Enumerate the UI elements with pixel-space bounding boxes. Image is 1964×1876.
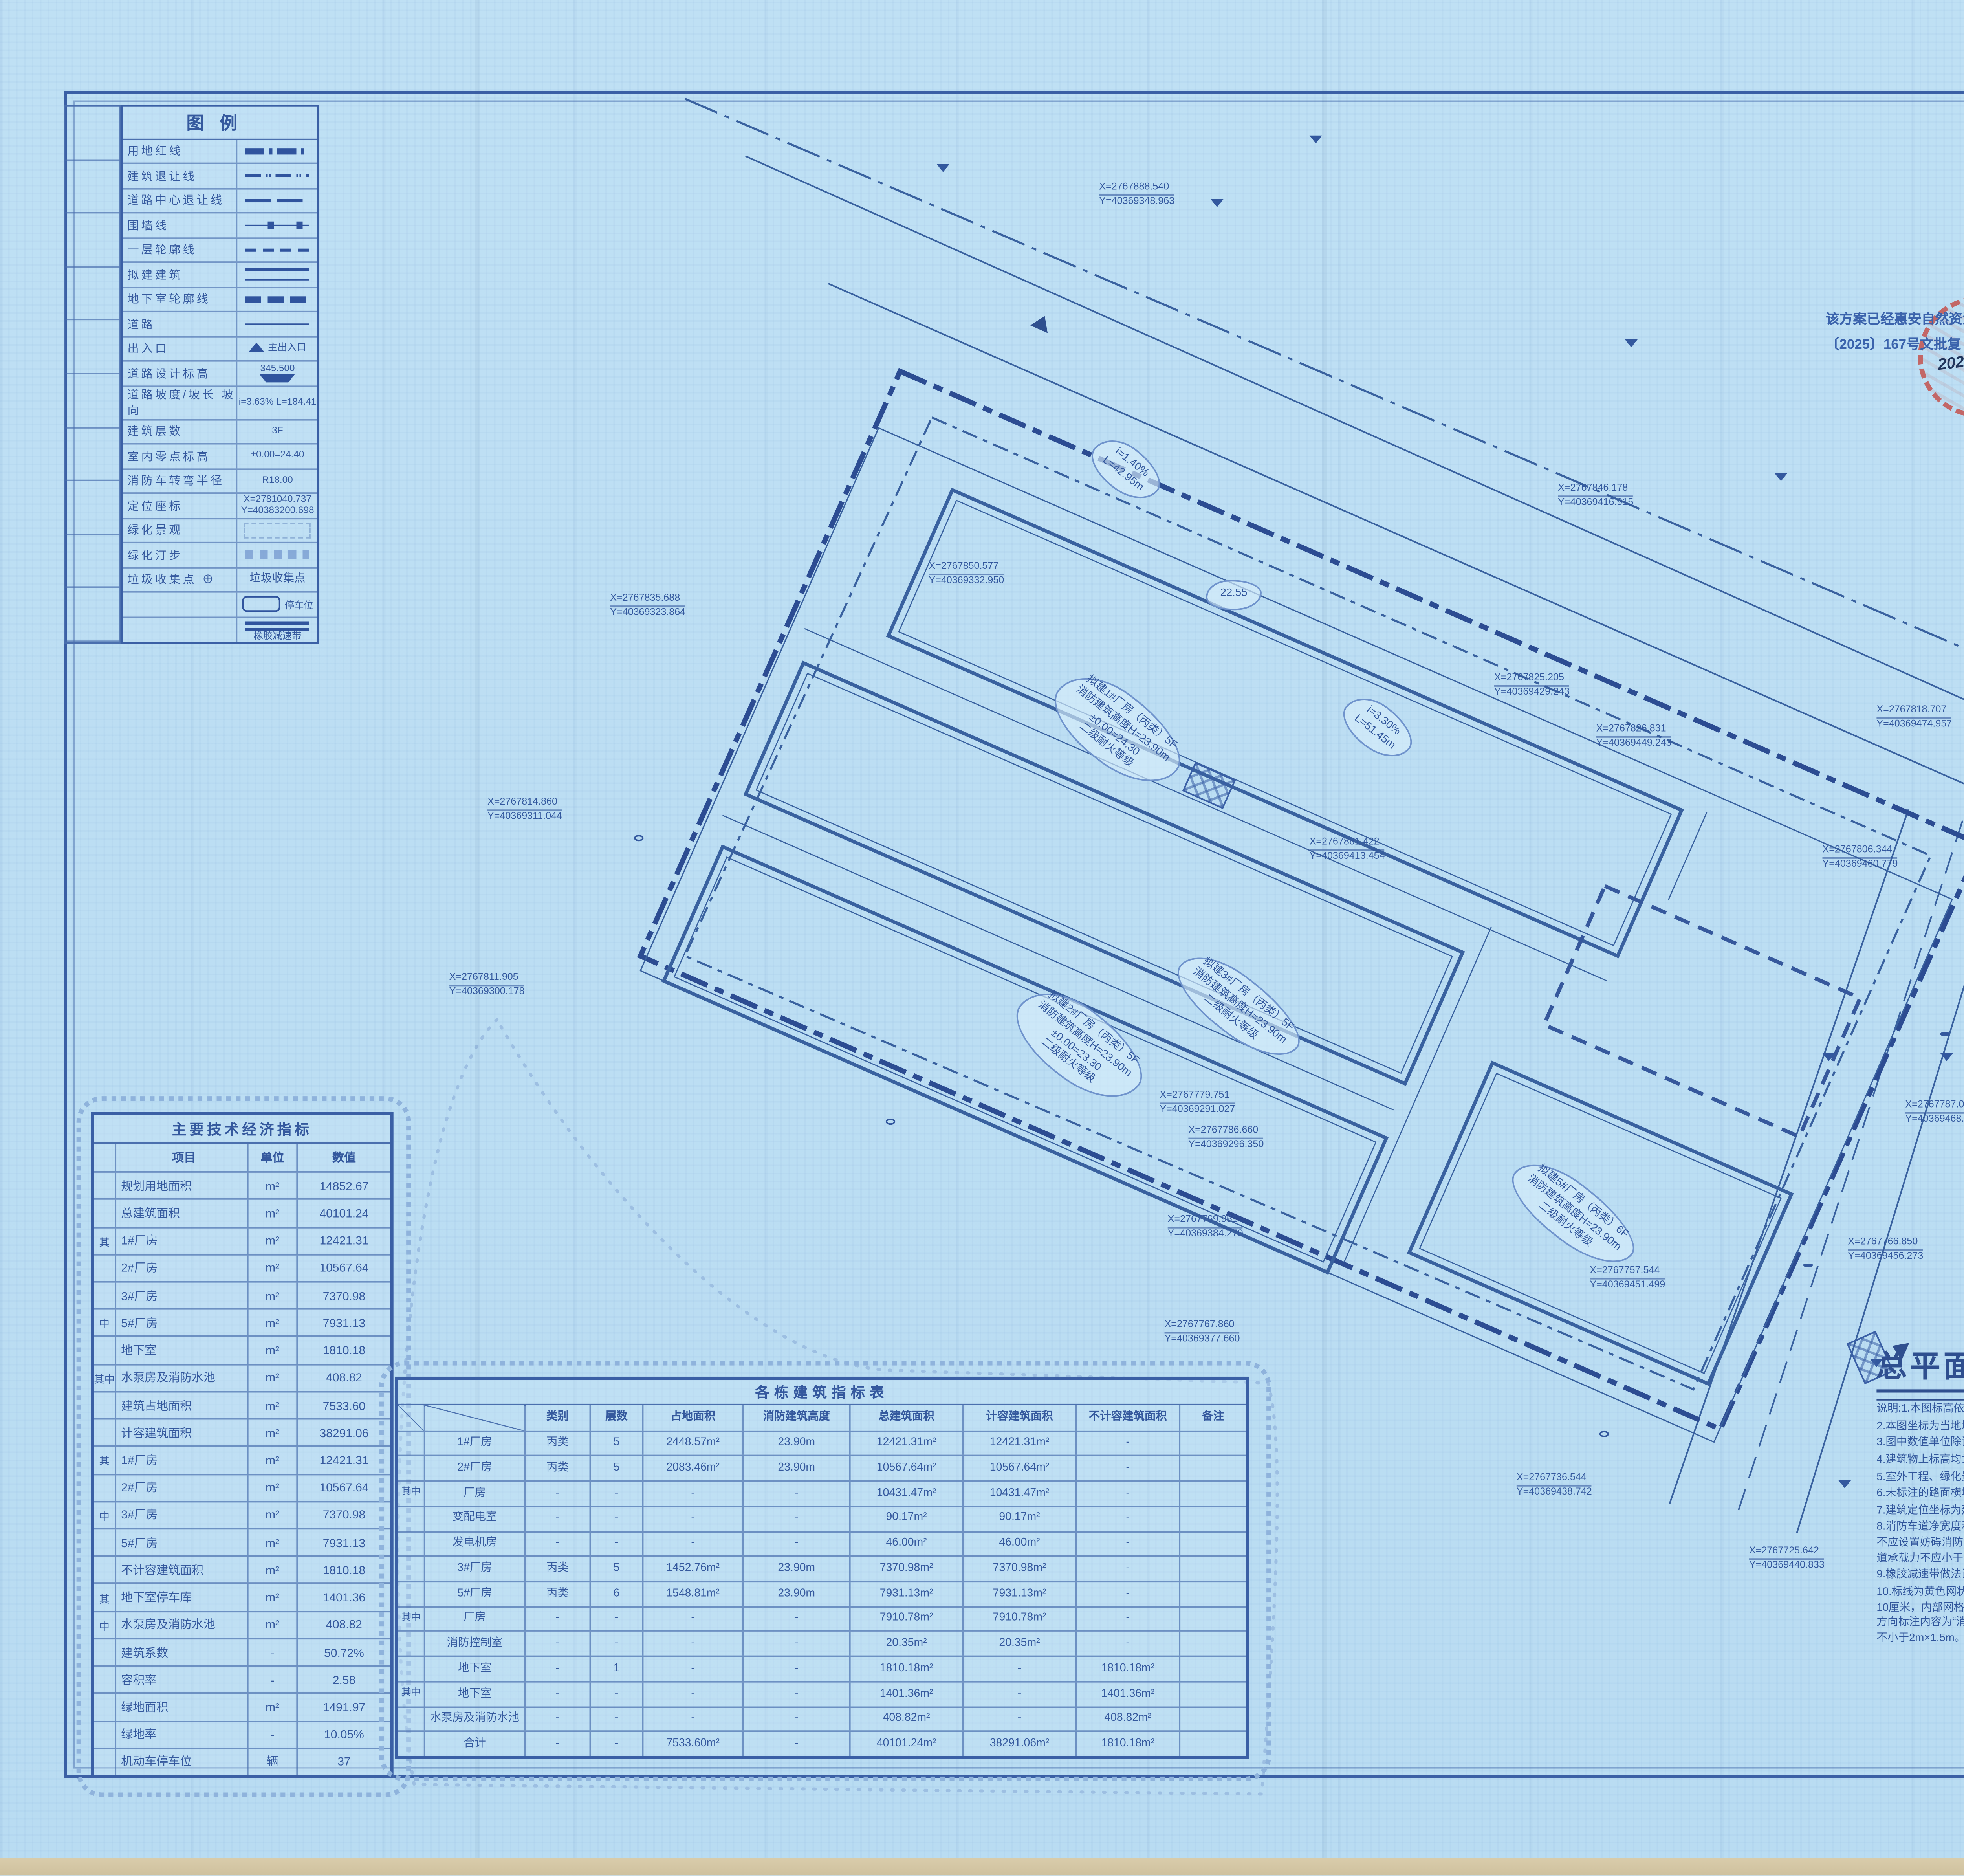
blueprint-sheet: 图例 用地红线 建筑退让线 道路中心退让线 围墙线 一层轮廓线 拟建建筑: [0, 0, 1964, 1875]
legend-row: 室内零点标高 ±0.00=24.40: [123, 445, 317, 470]
legend-row: 消防车转弯半径 R18.00: [123, 470, 317, 495]
table-row: 总建筑面积 m² 40101.24: [94, 1200, 390, 1228]
legend-label: 拟建建筑: [123, 264, 238, 287]
note-item: 8.消防车道净宽度和净高度均不小于4M，消防车道与建筑之间不应设置妨碍消防车操作…: [1876, 1521, 1964, 1567]
coordinate-label: X=2767736.544Y=40369438.742: [1517, 1472, 1592, 1498]
coordinate-label: X=2767769.951Y=40369384.270: [1168, 1214, 1243, 1240]
main-title-text: 总平面图: [1876, 1343, 1964, 1386]
legend-row: 建筑层数 3F: [123, 420, 317, 445]
table-row: 建筑占地面积 m² 7533.60: [94, 1392, 390, 1420]
legend-symbol: [238, 199, 317, 204]
approval-note-line1: 该方案已经惠安自然资源局: [1826, 309, 1964, 328]
legend-row: 定位座标 X=2781040.737 Y=40383200.698: [123, 494, 317, 519]
plan-label: [1211, 198, 1223, 207]
table-row: 地下室 m² 1810.18: [94, 1338, 390, 1365]
table-row: 绿地率 - 10.05%: [94, 1722, 390, 1749]
table-row: 1#厂房 丙类 5 2448.57m² 23.90m 12421.31m² 12…: [398, 1432, 1246, 1457]
table-row: 水泵房及消防水池 - - - - 408.82m² - 408.82m²: [398, 1707, 1246, 1733]
table-row: 其中 水泵房及消防水池 m² 408.82: [94, 1365, 390, 1392]
legend-symbol: [238, 148, 317, 156]
legend-row: 停车位: [123, 593, 317, 618]
table-row: 建筑系数 - 50.72%: [94, 1639, 390, 1667]
note-item: 5.室外工程、绿化景观详见景观设计施工图。: [1876, 1470, 1964, 1485]
legend-symbol: [238, 522, 317, 539]
plan-label: [1838, 1479, 1851, 1488]
indicators-title: 主要技术经济指标: [94, 1115, 390, 1144]
legend-label: 建筑退让线: [123, 165, 238, 188]
legend-symbol: ±0.00=24.40: [238, 451, 317, 462]
coordinate-label: X=2767786.660Y=40369296.350: [1188, 1125, 1264, 1151]
legend-label: 一层轮廓线: [123, 239, 238, 262]
legend-row: 建筑退让线: [123, 165, 317, 190]
table-row: 5#厂房 m² 7931.13: [94, 1529, 390, 1557]
table-row: 其 1#厂房 m² 12421.31: [94, 1228, 390, 1255]
table-row: 规划用地面积 m² 14852.67: [94, 1173, 390, 1201]
note-item: 10.标线为黄色网状实线，外边框线宽20厘米，内部网格线宽10厘米，内部网格线与…: [1876, 1585, 1964, 1647]
legend-symbol: 橡胶减速带: [238, 618, 317, 642]
legend-symbol: R18.00: [238, 476, 317, 486]
legend-label: 出入口: [123, 337, 238, 361]
table-row: 地下室 - 1 - - 1810.18m² - 1810.18m²: [398, 1657, 1246, 1682]
legend-label: 绿化景观: [123, 519, 238, 542]
indicators-rows: 规划用地面积 m² 14852.67 总建筑面积 m² 40101.24 其 1…: [94, 1173, 390, 1775]
coordinate-label: X=2767814.860Y=40369311.044: [487, 797, 562, 823]
plan-label: [937, 163, 949, 172]
note-item: 2.本图坐标为当地城市坐标系统，高程为黄海高程系统。: [1876, 1419, 1964, 1434]
legend-row: 出入口 主出入口: [123, 337, 317, 362]
legend-row: 地下室轮廓线: [123, 288, 317, 313]
table-row: 机动车停车位 辆 37: [94, 1749, 390, 1775]
legend-label: 建筑层数: [123, 420, 238, 444]
plan-label: [1599, 1431, 1609, 1437]
fold-crease: [1322, 0, 1327, 1875]
table-row: 其 地下室停车库 m² 1401.36: [94, 1584, 390, 1612]
coordinate-label: X=2767725.642Y=40369440.833: [1749, 1546, 1825, 1572]
legend-symbol: 主出入口: [238, 343, 317, 355]
plan-label: [634, 835, 643, 841]
coordinate-label: X=2767767.860Y=40369377.660: [1165, 1319, 1240, 1346]
coordinate-label: X=2767826.831Y=40369449.243: [1596, 723, 1672, 750]
note-item: 4.建筑物上标高均为各幢的±0.00相应的黄海高程。: [1876, 1453, 1964, 1468]
legend-label: 消防车转弯半径: [123, 470, 238, 493]
legend-symbol: [238, 268, 317, 282]
table-row: 中 5#厂房 m² 7931.13: [94, 1310, 390, 1338]
table-row: 其中 厂房 - - - - 10431.47m² 10431.47m² -: [398, 1482, 1246, 1507]
coordinate-label: X=2767846.178Y=40369416.915: [1558, 483, 1633, 509]
legend-row: 道路坡度/坡长 坡向 i=3.63% L=184.41: [123, 387, 317, 420]
buildings-table: 各栋建筑指标表 类别 层数 占地面积 消防建筑高度 总建筑面积 计容建筑面积 不…: [395, 1377, 1249, 1759]
legend-label: 定位座标: [123, 494, 238, 517]
legend-label: 围墙线: [123, 214, 238, 237]
legend-symbol: [238, 550, 317, 561]
legend-title: 图例: [123, 107, 317, 140]
legend-symbol: [238, 174, 317, 179]
legend-label: [123, 593, 238, 616]
table-row: 2#厂房 m² 10567.64: [94, 1475, 390, 1502]
coordinate-label: X=2767888.540Y=40369348.963: [1099, 182, 1174, 208]
signature-strip: [64, 105, 121, 644]
legend-label: 用地红线: [123, 140, 238, 163]
legend-symbol: 垃圾收集点: [238, 574, 317, 586]
legend-label: 道路中心退让线: [123, 189, 238, 213]
table-row: 2#厂房 丙类 5 2083.46m² 23.90m 10567.64m² 10…: [398, 1457, 1246, 1482]
legend-row: 道路设计标高 345.500: [123, 362, 317, 387]
legend-symbol: 停车位: [238, 596, 317, 613]
note-item: 6.未标注的路面横坡均为2%。: [1876, 1487, 1964, 1502]
coordinate-label: X=2767806.344Y=40369460.779: [1822, 844, 1898, 871]
table-row: 其中 地下室 - - - - 1401.36m² - 1401.36m²: [398, 1682, 1246, 1707]
legend-row: 垃圾收集点 ⊕ 垃圾收集点: [123, 568, 317, 593]
table-row: 5#厂房 丙类 6 1548.81m² 23.90m 7931.13m² 793…: [398, 1582, 1246, 1607]
legend-table: 图例 用地红线 建筑退让线 道路中心退让线 围墙线 一层轮廓线 拟建建筑: [121, 105, 319, 644]
table-row: 不计容建筑面积 m² 1810.18: [94, 1557, 390, 1584]
table-row: 中 水泵房及消防水池 m² 408.82: [94, 1612, 390, 1639]
table-row: 合计 - - 7533.60m² - 40101.24m² 38291.06m²…: [398, 1732, 1246, 1756]
buildings-header: 类别 层数 占地面积 消防建筑高度 总建筑面积 计容建筑面积 不计容建筑面积 备…: [398, 1405, 1246, 1432]
plan-label: [1822, 1052, 1835, 1061]
general-notes: 说明:1.本图标高依业主提供现状实测标高设计。2.本图坐标为当地城市坐标系统，高…: [1876, 1402, 1964, 1649]
table-row: 2#厂房 m² 10567.64: [94, 1255, 390, 1283]
coordinate-label: X=2767835.688Y=40369323.864: [610, 593, 685, 619]
indicators-table: 主要技术经济指标 项目 单位 数值 规划用地面积 m² 14852.67 总建筑…: [91, 1112, 394, 1778]
plan-label: [1803, 1264, 1813, 1267]
legend-row: 道路中心退让线: [123, 189, 317, 214]
legend-label: 道路: [123, 313, 238, 336]
legend-symbol: [238, 296, 317, 304]
legend-symbol: X=2781040.737 Y=40383200.698: [238, 496, 317, 516]
legend-row: 用地红线: [123, 140, 317, 165]
buildings-title: 各栋建筑指标表: [398, 1380, 1246, 1405]
coordinate-label: X=2767850.577Y=40369332.950: [929, 561, 1004, 587]
table-row: 绿地面积 m² 1491.97: [94, 1694, 390, 1722]
legend-symbol: [238, 323, 317, 326]
table-row: 消防控制室 - - - - 20.35m² 20.35m² -: [398, 1632, 1246, 1657]
note-item: 说明:1.本图标高依业主提供现状实测标高设计。: [1876, 1402, 1964, 1418]
legend-symbol: [238, 248, 317, 253]
plan-label: [1775, 471, 1787, 481]
table-row: 3#厂房 m² 7370.98: [94, 1283, 390, 1310]
legend-symbol: 3F: [238, 427, 317, 437]
plan-label: [886, 1119, 895, 1125]
callout-cloud: 22.55: [1206, 580, 1262, 610]
note-item: 3.图中数值单位除详图为毫米外，其余均为米。: [1876, 1436, 1964, 1451]
plan-label: [1310, 134, 1322, 143]
legend-label: 垃圾收集点 ⊕: [123, 568, 238, 592]
legend-label: 绿化汀步: [123, 544, 238, 567]
legend-row: 道路: [123, 313, 317, 337]
table-row: 其中 厂房 - - - - 7910.78m² 7910.78m² -: [398, 1607, 1246, 1632]
planning-approval-stamp: 该方案已经惠安自然资源局 〔2025〕167号文批复 2025年7月22日: [1826, 309, 1964, 408]
legend-label: [123, 618, 238, 642]
legend-label: 道路坡度/坡长 坡向: [123, 387, 238, 419]
coordinate-label: X=2767811.905Y=40369300.178: [449, 972, 525, 998]
table-row: 发电机房 - - - - 46.00m² 46.00m² -: [398, 1532, 1246, 1557]
legend-row: 橡胶减速带: [123, 618, 317, 642]
legend-symbol: 345.500: [238, 365, 317, 383]
legend-symbol: [238, 221, 317, 230]
table-row: 容积率 - 2.58: [94, 1667, 390, 1694]
legend-row: 绿化汀步: [123, 544, 317, 568]
table-row: 计容建筑面积 m² 38291.06: [94, 1420, 390, 1447]
note-item: 9.橡胶减速带做法详17J927-1-(1/3-10)。: [1876, 1568, 1964, 1584]
coordinate-label: X=2767825.205Y=40369429.243: [1494, 672, 1570, 699]
table-row: 3#厂房 丙类 5 1452.76m² 23.90m 7370.98m² 737…: [398, 1557, 1246, 1582]
legend-label: 道路设计标高: [123, 362, 238, 385]
coordinate-label: X=2767861.422Y=40369413.454: [1310, 836, 1385, 863]
table-row: 变配电室 - - - - 90.17m² 90.17m² -: [398, 1507, 1246, 1532]
legend-row: 拟建建筑: [123, 264, 317, 288]
plan-label: [1940, 1032, 1950, 1036]
note-item: 7.建筑定位坐标为建筑角点座标。: [1876, 1504, 1964, 1519]
coordinate-label: X=2767757.544Y=40369451.499: [1590, 1265, 1665, 1291]
legend-label: 地下室轮廓线: [123, 288, 238, 312]
legend-row: 一层轮廓线: [123, 239, 317, 264]
legend-label: 室内零点标高: [123, 445, 238, 468]
coordinate-label: X=2767779.751Y=40369291.027: [1160, 1090, 1235, 1116]
coordinate-label: X=2767818.707Y=40369474.957: [1876, 704, 1952, 731]
legend-row: 绿化景观: [123, 519, 317, 544]
scan-edge: [0, 1858, 1964, 1876]
buildings-rows: 1#厂房 丙类 5 2448.57m² 23.90m 12421.31m² 12…: [398, 1432, 1246, 1756]
table-row: 其 1#厂房 m² 12421.31: [94, 1447, 390, 1475]
plan-label: [1625, 338, 1638, 347]
main-title: 总平面图 1:400 （调整后）: [1876, 1343, 1964, 1400]
legend-symbol: i=3.63% L=184.41: [238, 398, 317, 408]
table-row: 中 3#厂房 m² 7370.98: [94, 1502, 390, 1530]
indicators-header: 项目 单位 数值: [94, 1144, 390, 1173]
coordinate-label: X=2767787.053Y=40369468.664: [1905, 1099, 1964, 1126]
legend-row: 围墙线: [123, 214, 317, 239]
legend-rows: 用地红线 建筑退让线 道路中心退让线 围墙线 一层轮廓线 拟建建筑 地下室轮廓线: [123, 140, 317, 642]
coordinate-label: X=2767766.850Y=40369456.273: [1848, 1236, 1923, 1263]
plan-label: [1940, 1052, 1953, 1061]
